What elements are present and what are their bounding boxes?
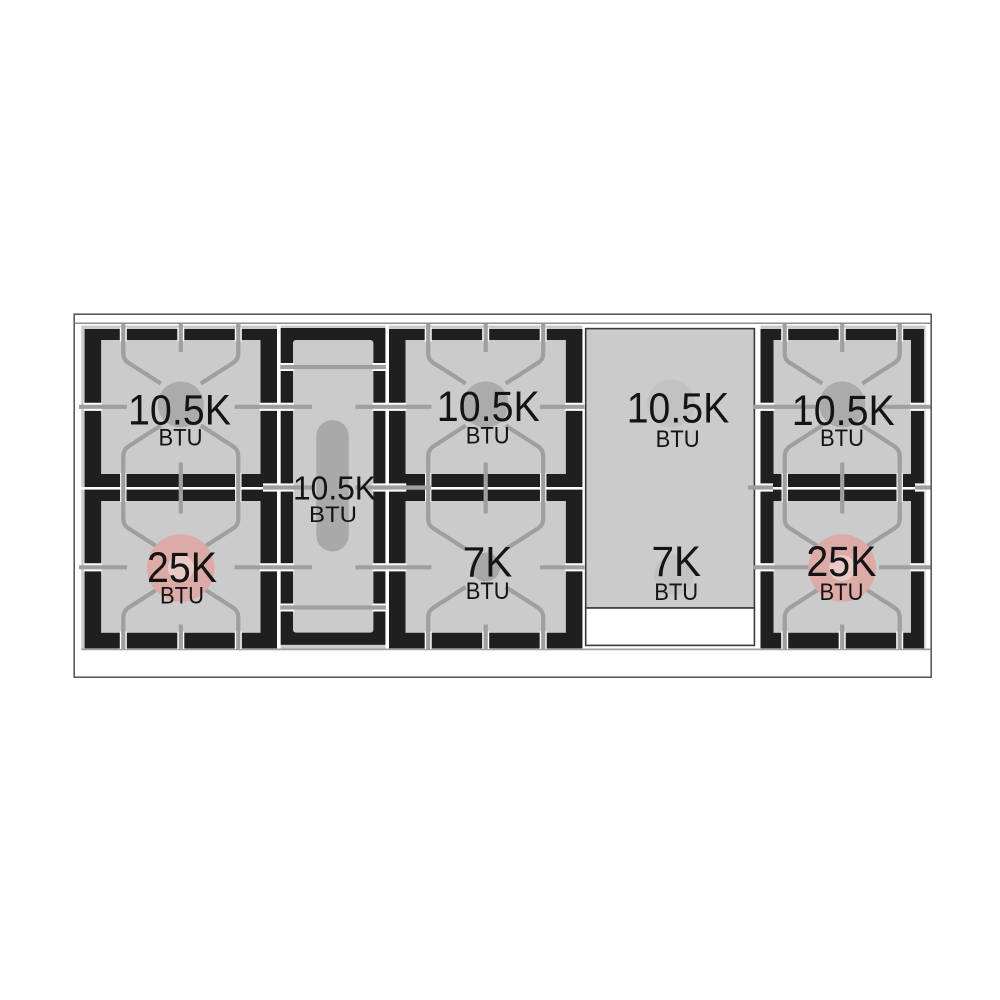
svg-text:BTU: BTU bbox=[159, 425, 203, 452]
svg-text:10.5K: 10.5K bbox=[293, 470, 376, 507]
svg-text:BTU: BTU bbox=[160, 583, 204, 610]
svg-text:BTU: BTU bbox=[466, 423, 510, 450]
svg-text:BTU: BTU bbox=[820, 579, 864, 606]
svg-text:BTU: BTU bbox=[466, 578, 510, 605]
svg-text:BTU: BTU bbox=[654, 579, 698, 606]
svg-text:BTU: BTU bbox=[309, 502, 357, 527]
svg-text:BTU: BTU bbox=[820, 425, 864, 452]
svg-text:BTU: BTU bbox=[656, 426, 700, 453]
